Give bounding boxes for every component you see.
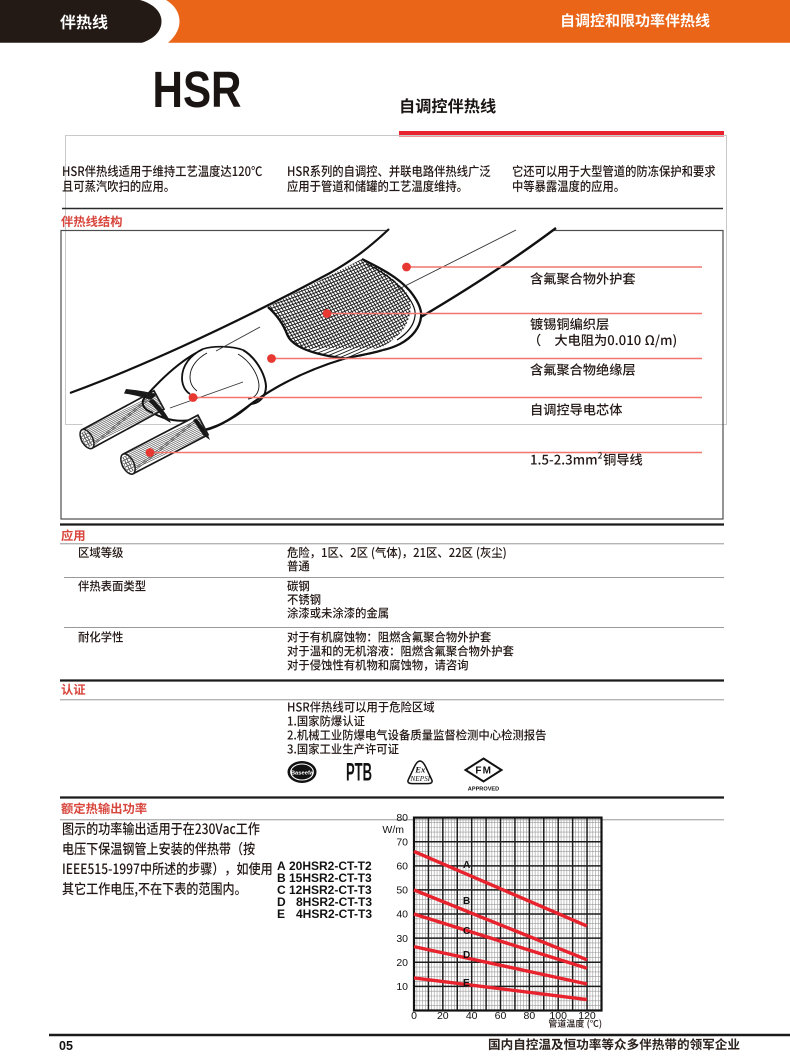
svg-text:FM: FM <box>475 766 492 777</box>
svg-text:05: 05 <box>59 1039 73 1053</box>
svg-text:A: A <box>463 860 470 871</box>
svg-text:4HSR2-CT-T3: 4HSR2-CT-T3 <box>296 907 372 921</box>
svg-text:80: 80 <box>524 1010 536 1022</box>
svg-text:D: D <box>463 950 470 961</box>
svg-text:B: B <box>463 896 470 907</box>
svg-text:E: E <box>463 978 470 989</box>
svg-text:40: 40 <box>396 909 408 921</box>
svg-text:Ex: Ex <box>414 765 426 775</box>
svg-text:20: 20 <box>396 957 408 969</box>
svg-text:PTB: PTB <box>346 759 372 787</box>
svg-text:30: 30 <box>396 933 408 945</box>
svg-text:50: 50 <box>396 885 408 897</box>
svg-text:20: 20 <box>437 1010 449 1022</box>
svg-text:Baseefa: Baseefa <box>291 770 314 776</box>
svg-text:APPROVED: APPROVED <box>468 787 499 793</box>
svg-text:0: 0 <box>411 1010 417 1022</box>
svg-text:80: 80 <box>396 812 408 824</box>
svg-text:60: 60 <box>396 860 408 872</box>
svg-text:60: 60 <box>495 1010 507 1022</box>
svg-text:NEPSI: NEPSI <box>410 775 431 783</box>
svg-text:10: 10 <box>396 981 408 993</box>
svg-text:W/m: W/m <box>382 824 404 836</box>
svg-text:40: 40 <box>466 1010 478 1022</box>
svg-text:70: 70 <box>396 836 408 848</box>
svg-text:C: C <box>463 926 470 937</box>
svg-text:E: E <box>277 907 285 921</box>
svg-text:HSR: HSR <box>153 61 242 118</box>
